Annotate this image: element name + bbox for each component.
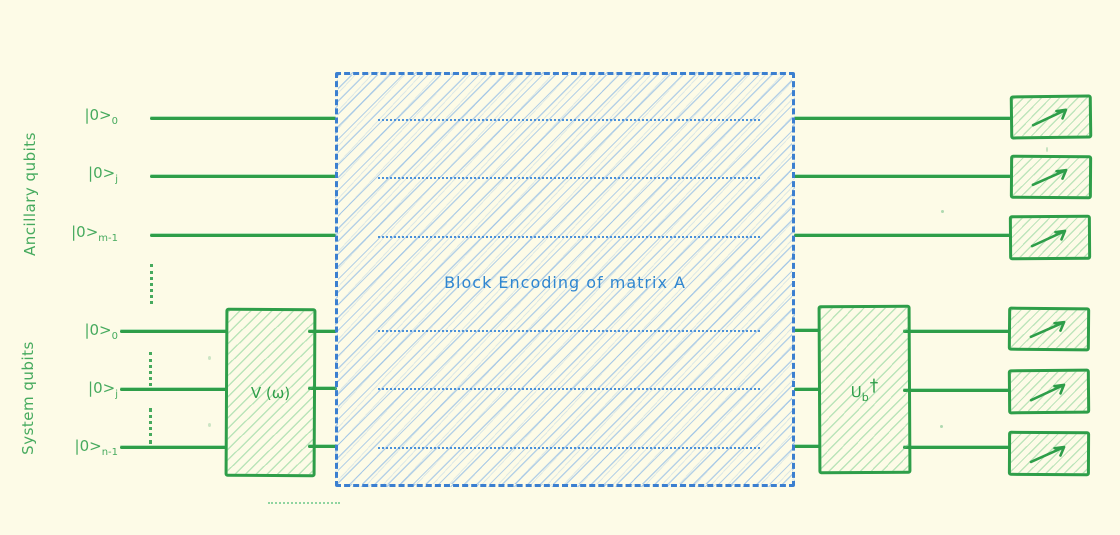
ket-subscript: j — [115, 389, 118, 400]
ket-base: |0> — [84, 106, 111, 124]
internal-wire-dotted — [378, 236, 760, 238]
qubit-wire — [150, 175, 336, 178]
block-encoding-label: Block Encoding of matrix A — [338, 273, 792, 292]
ket-subscript: m-1 — [98, 233, 118, 244]
qubit-label-system-j: |0>j — [36, 379, 118, 400]
circuit-diagram-canvas: Ancillary qubits System qubits |0>0 |0>j… — [0, 0, 1120, 535]
ellipsis-dots-vertical — [149, 352, 152, 386]
measure-arrow-icon — [1021, 102, 1081, 133]
ub-gate-label: Ub† — [851, 375, 879, 403]
measure-arrow-icon — [1019, 376, 1079, 407]
v-gate-label: V (ω) — [251, 383, 290, 401]
measurement-gate — [1008, 431, 1090, 476]
qubit-wire — [794, 329, 820, 332]
qubit-label-system-n1: |0>n-1 — [36, 437, 118, 458]
qubit-wire — [903, 330, 1009, 333]
measurement-gate — [1010, 95, 1093, 140]
measurement-gate — [1009, 215, 1091, 261]
measurement-gate — [1008, 307, 1090, 352]
qubit-wire — [120, 330, 227, 333]
measurement-gate — [1008, 369, 1090, 415]
sketch-dot — [208, 423, 211, 427]
internal-wire-dotted — [378, 447, 760, 449]
dagger-symbol: † — [870, 375, 879, 395]
ket-base: |0> — [88, 164, 115, 182]
ket-base: |0> — [71, 223, 98, 241]
qubit-wire — [794, 388, 820, 391]
qubit-wire — [794, 445, 820, 448]
qubit-label-system-0: |0>0 — [36, 321, 118, 342]
internal-wire-dotted — [378, 330, 760, 332]
qubit-wire — [903, 446, 1009, 449]
sketch-dot — [941, 210, 944, 213]
qubit-label-ancillary-m1: |0>m-1 — [36, 223, 118, 244]
qubit-wire — [794, 234, 1010, 237]
block-encoding-box: Block Encoding of matrix A — [335, 72, 795, 487]
qubit-wire — [120, 446, 227, 449]
ancillary-qubits-group-label: Ancillary qubits — [21, 119, 43, 269]
ket-base: |0> — [88, 379, 115, 397]
qubit-wire — [120, 388, 227, 391]
internal-wire-dotted — [378, 388, 760, 390]
measurement-gate — [1010, 155, 1092, 200]
measure-arrow-icon — [1020, 222, 1080, 252]
qubit-label-ancillary-j: |0>j — [36, 164, 118, 185]
ket-subscript: 0 — [112, 331, 118, 342]
qubit-wire — [150, 234, 336, 237]
qubit-label-ancillary-0: |0>0 — [36, 106, 118, 127]
qubit-wire — [794, 117, 1011, 120]
sketch-dot — [208, 356, 211, 360]
qubit-wire — [903, 389, 1009, 392]
ket-subscript: n-1 — [102, 447, 118, 458]
v-omega-gate: V (ω) — [225, 308, 317, 477]
ket-subscript: 0 — [112, 116, 118, 127]
measure-arrow-icon — [1019, 438, 1079, 468]
qubit-wire — [150, 117, 336, 120]
measure-arrow-icon — [1021, 162, 1081, 192]
ellipsis-dots-vertical — [150, 264, 153, 304]
ket-base: |0> — [84, 321, 111, 339]
ellipsis-dots-vertical — [149, 408, 152, 444]
ellipsis-dots-horizontal — [268, 502, 340, 504]
sketch-dot — [1046, 147, 1048, 152]
ub-dagger-gate: Ub† — [818, 305, 912, 474]
sketch-dot — [940, 425, 943, 428]
ket-subscript: j — [115, 174, 118, 185]
ket-base: |0> — [75, 437, 102, 455]
ub-subscript: b — [862, 390, 869, 403]
ub-base: U — [851, 383, 862, 401]
qubit-wire — [794, 175, 1011, 178]
internal-wire-dotted — [378, 119, 760, 121]
internal-wire-dotted — [378, 177, 760, 179]
measure-arrow-icon — [1019, 314, 1079, 345]
